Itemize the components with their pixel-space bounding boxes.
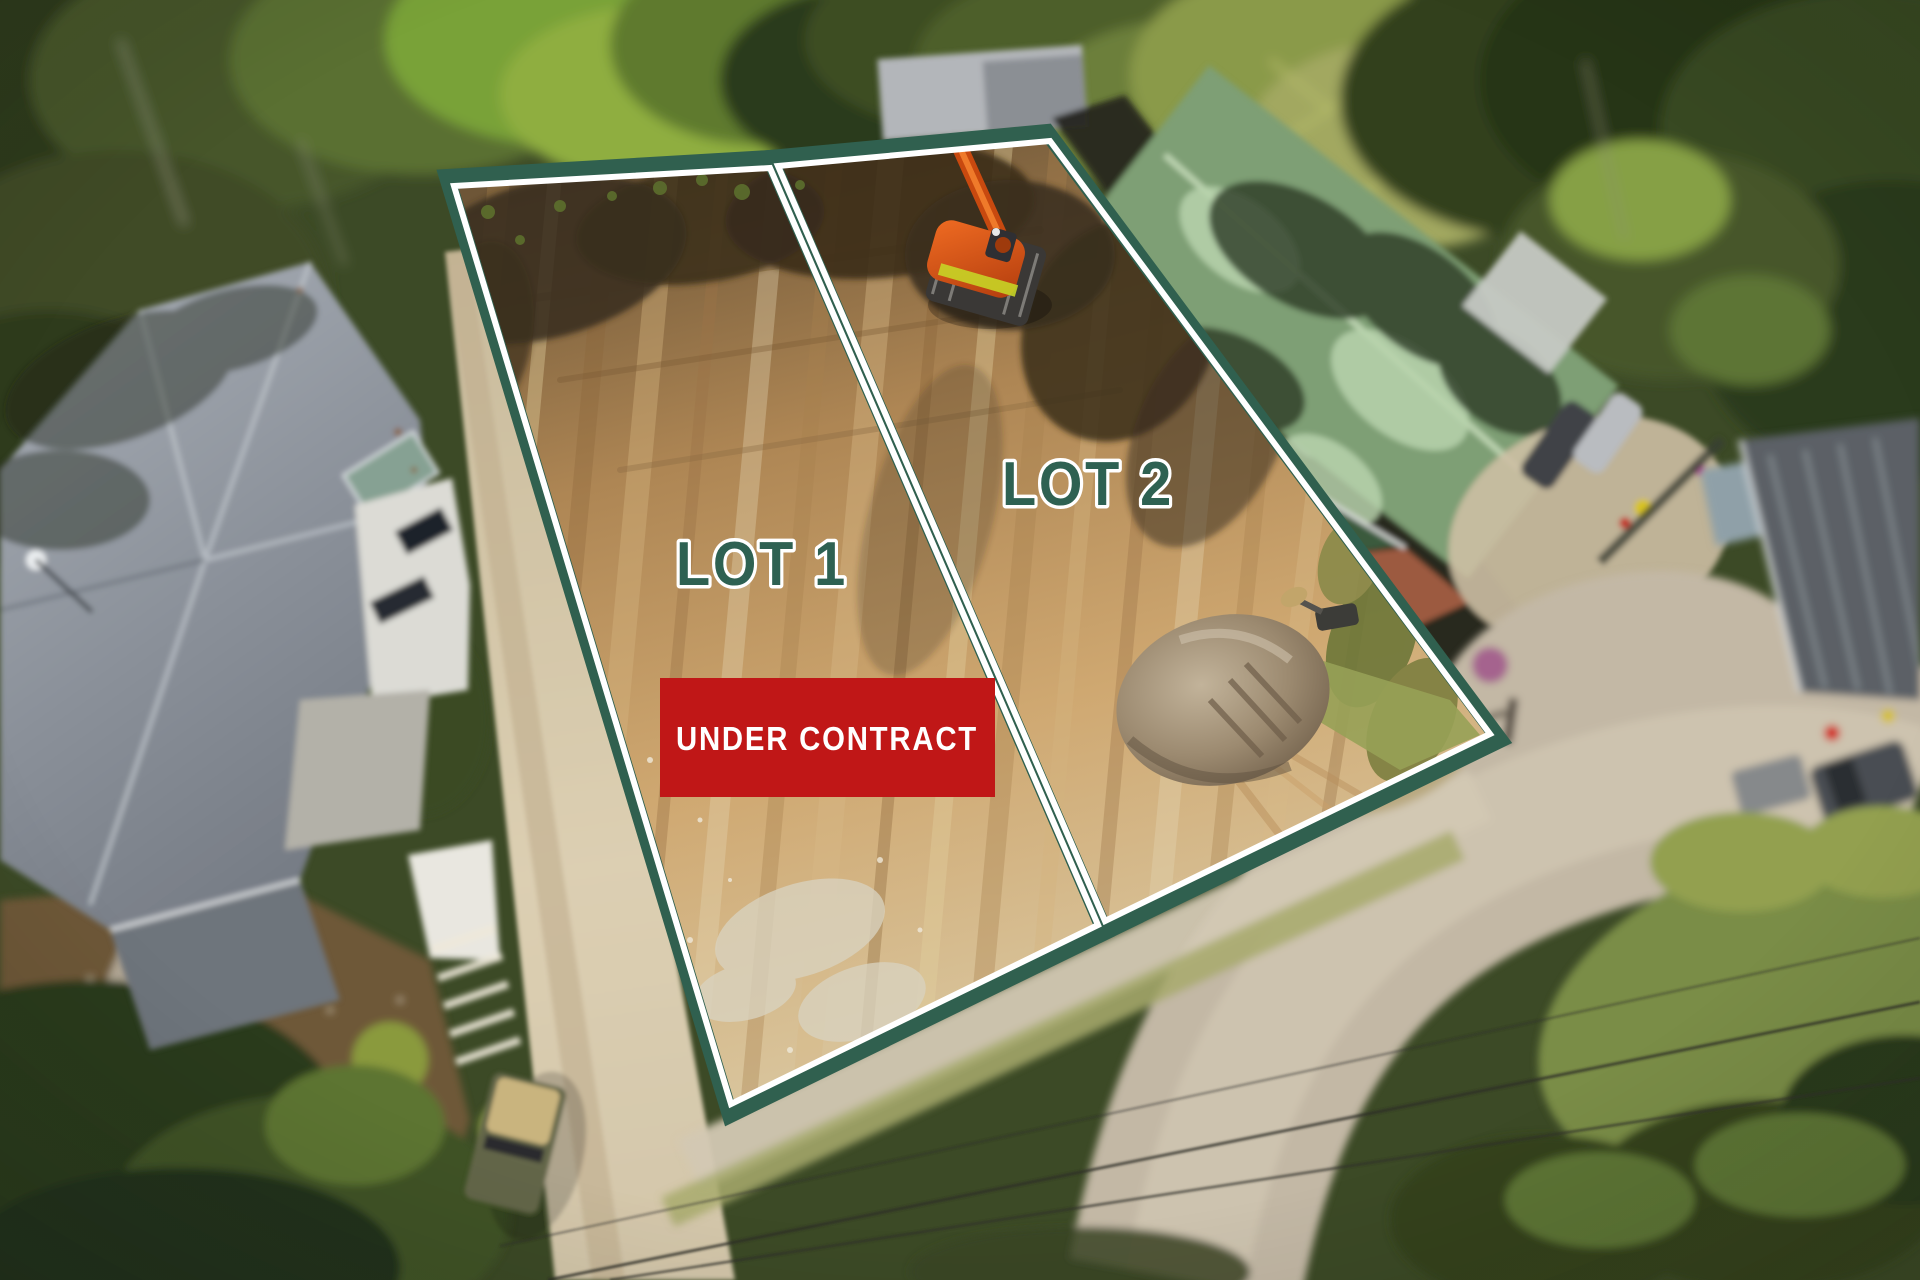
real-estate-aerial-photo: LOT 1 LOT 2 UNDER CONTRACT [0,0,1920,1280]
vignette-overlay [0,0,1920,1280]
aerial-photo: LOT 1 LOT 2 UNDER CONTRACT [0,0,1920,1280]
